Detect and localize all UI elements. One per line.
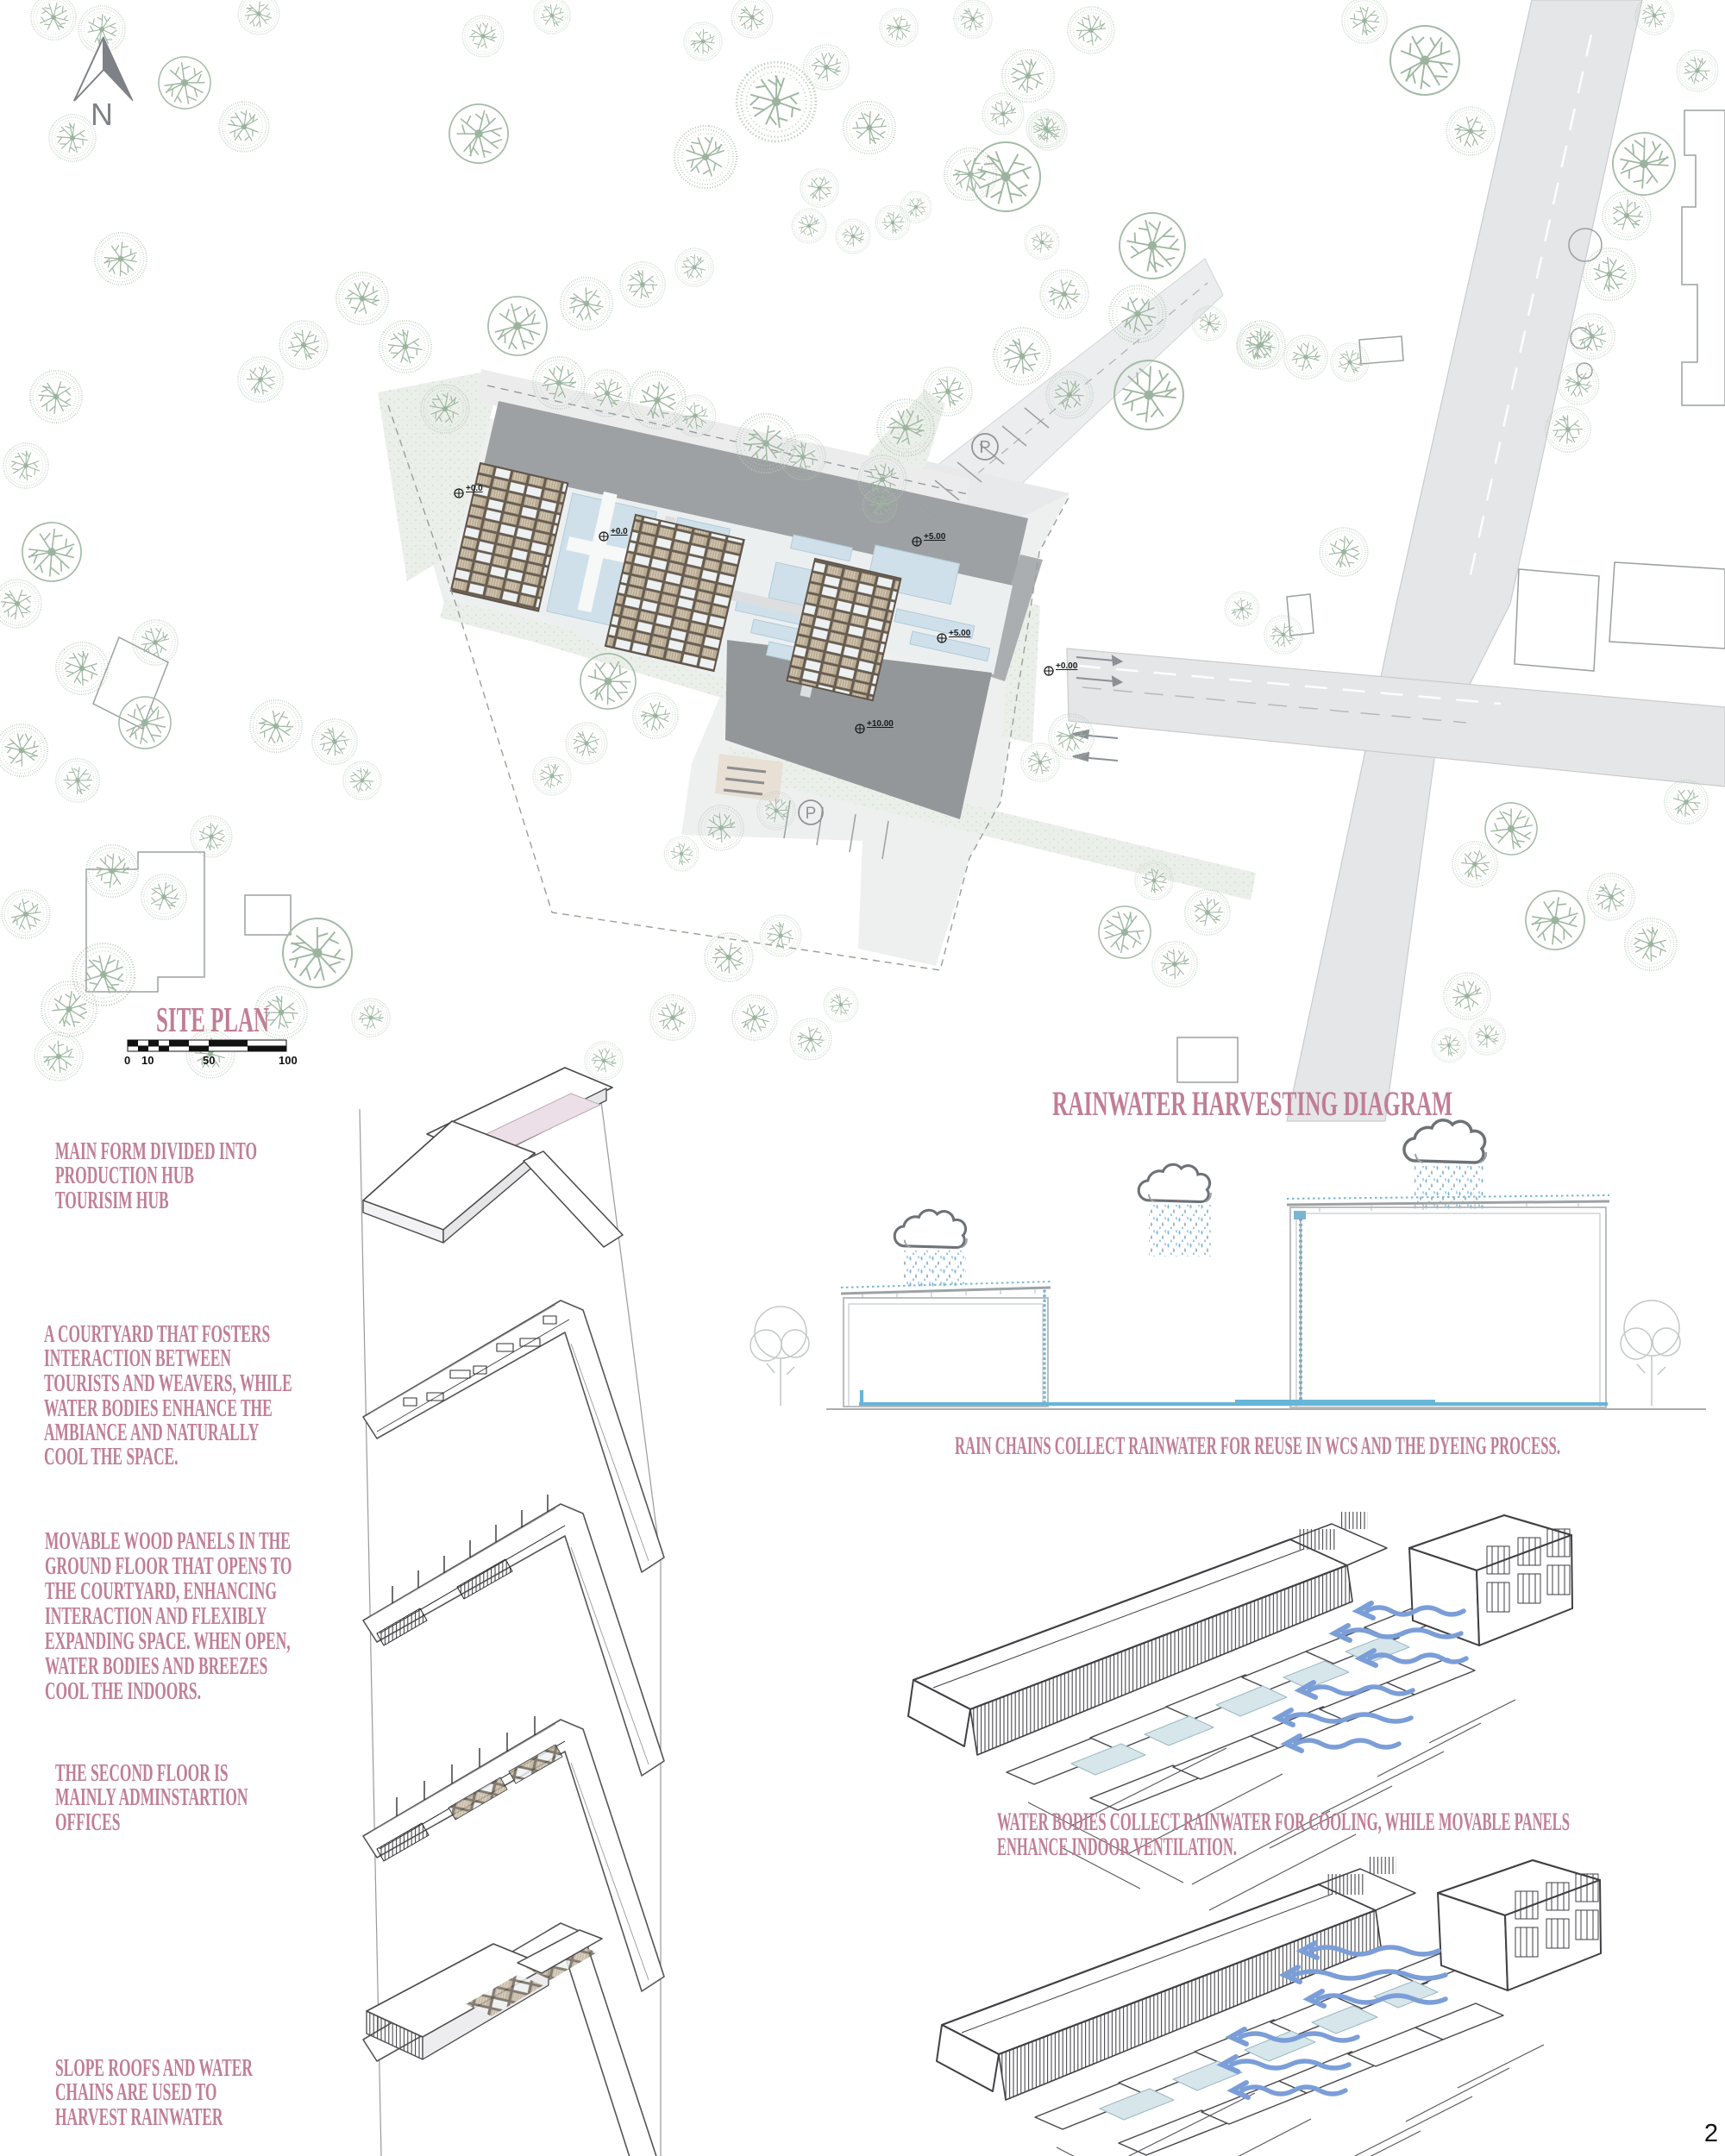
svg-text:P: P [979, 438, 990, 457]
svg-text:WATER BODIES AND BREEZES: WATER BODIES AND BREEZES [45, 1653, 267, 1681]
svg-text:+0.0: +0.0 [611, 527, 628, 536]
svg-text:A COURTYARD THAT FOSTERS: A COURTYARD THAT FOSTERS [44, 1321, 270, 1349]
svg-text:CHAINS ARE USED TO: CHAINS ARE USED TO [55, 2079, 216, 2107]
svg-text:OFFICES: OFFICES [55, 1809, 120, 1837]
svg-text:WATER BODIES ENHANCE THE: WATER BODIES ENHANCE THE [44, 1395, 273, 1423]
svg-text:+5.00: +5.00 [949, 629, 971, 638]
svg-text:INTERACTION AND FLEXIBLY: INTERACTION AND FLEXIBLY [45, 1603, 267, 1631]
svg-text:2: 2 [1704, 2120, 1718, 2147]
svg-text:MAINLY ADMINSTARTION: MAINLY ADMINSTARTION [55, 1784, 248, 1812]
svg-text:MOVABLE WOOD PANELS IN THE: MOVABLE WOOD PANELS IN THE [45, 1528, 291, 1556]
svg-text:MAIN FORM DIVIDED INTO: MAIN FORM DIVIDED INTO [55, 1138, 257, 1166]
svg-text:TOURISIM HUB: TOURISIM HUB [55, 1188, 169, 1215]
svg-text:N: N [91, 97, 113, 132]
svg-text:10: 10 [141, 1054, 154, 1067]
svg-text:+0.0: +0.0 [466, 484, 483, 493]
svg-text:INTERACTION BETWEEN: INTERACTION BETWEEN [44, 1345, 231, 1373]
svg-text:HARVEST RAINWATER: HARVEST RAINWATER [55, 2104, 223, 2132]
svg-text:+10.00: +10.00 [867, 719, 894, 729]
svg-text:+5.00: +5.00 [924, 532, 946, 542]
svg-text:RAIN CHAINS COLLECT RAINWATER: RAIN CHAINS COLLECT RAINWATER FOR REUSE … [955, 1432, 1560, 1460]
svg-text:P: P [806, 805, 817, 823]
svg-text:THE COURTYARD, ENHANCING: THE COURTYARD, ENHANCING [45, 1578, 277, 1606]
svg-text:50: 50 [203, 1054, 215, 1067]
svg-text:THE SECOND FLOOR IS: THE SECOND FLOOR IS [55, 1760, 229, 1788]
svg-text:COOL THE SPACE.: COOL THE SPACE. [44, 1444, 178, 1471]
svg-text:SITE PLAN: SITE PLAN [156, 1000, 269, 1039]
svg-text:100: 100 [279, 1054, 298, 1067]
svg-text:+0.00: +0.00 [1056, 661, 1078, 671]
svg-text:ENHANCE INDOOR VENTILATION.: ENHANCE INDOOR VENTILATION. [997, 1833, 1237, 1861]
svg-text:EXPANDING SPACE. WHEN OPEN,: EXPANDING SPACE. WHEN OPEN, [45, 1628, 291, 1656]
svg-text:COOL THE INDOORS.: COOL THE INDOORS. [45, 1678, 201, 1706]
svg-text:RAINWATER HARVESTING DIAGRAM: RAINWATER HARVESTING DIAGRAM [1052, 1084, 1452, 1123]
svg-text:AMBIANCE AND NATURALLY: AMBIANCE AND NATURALLY [44, 1420, 259, 1447]
svg-text:PRODUCTION HUB: PRODUCTION HUB [55, 1163, 194, 1190]
svg-text:TOURISTS AND WEAVERS, WHILE: TOURISTS AND WEAVERS, WHILE [44, 1370, 292, 1398]
svg-text:SLOPE ROOFS AND WATER: SLOPE ROOFS AND WATER [55, 2055, 253, 2083]
svg-text:GROUND FLOOR THAT OPENS TO: GROUND FLOOR THAT OPENS TO [45, 1553, 292, 1581]
svg-text:0: 0 [124, 1054, 130, 1067]
